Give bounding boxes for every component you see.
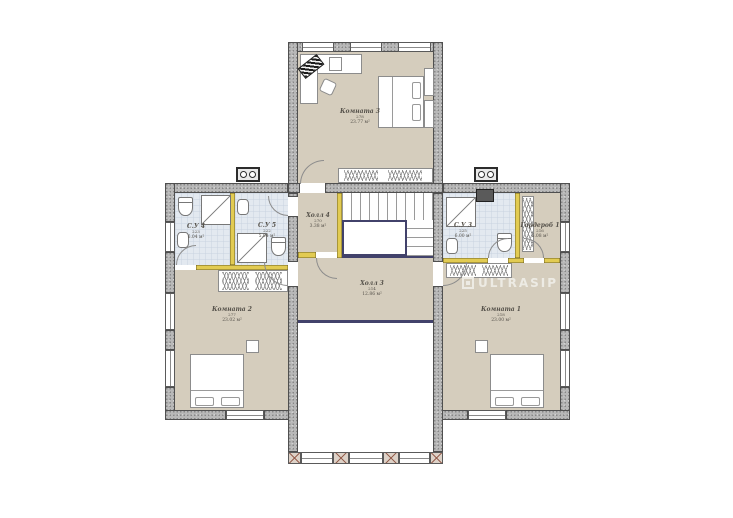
room1-bed-blanket-line bbox=[491, 390, 543, 391]
room3-label: Комната 3 278 23.77 м² bbox=[320, 108, 400, 125]
wall-room3-bottom-b bbox=[325, 183, 443, 193]
watermark-text: ULTRASIP bbox=[478, 276, 558, 290]
floor-plan: Комната 3 278 23.77 м² Холл 4 270 3.38 м… bbox=[0, 0, 733, 518]
window-room1-bottom bbox=[468, 410, 506, 420]
wall-right-outer-1 bbox=[560, 183, 570, 222]
stairwell-void bbox=[342, 220, 407, 256]
su4-label: С.У 4 223 6.04 м² bbox=[178, 223, 214, 240]
void-opening bbox=[298, 323, 433, 452]
window-facade-2 bbox=[349, 452, 383, 464]
wardrobe1-label: Гардероб 1 216 5.08 м² bbox=[518, 222, 562, 239]
facade-pier-1 bbox=[288, 452, 301, 464]
wardrobe1-area: 5.08 м² bbox=[518, 234, 562, 239]
room2-nightstand bbox=[246, 340, 259, 353]
void-railing bbox=[298, 320, 433, 323]
wall-core-right-top bbox=[433, 193, 443, 262]
wall-core-left-mid bbox=[288, 216, 298, 262]
room3-area: 23.77 м² bbox=[320, 120, 400, 125]
room2-pillow-2 bbox=[221, 397, 240, 406]
su5-sink bbox=[237, 199, 249, 215]
wall-left-bottom-a bbox=[165, 410, 226, 420]
room2-pillow-1 bbox=[195, 397, 214, 406]
room1-area: 23.00 м² bbox=[456, 318, 546, 323]
room1-pillow-2 bbox=[521, 397, 540, 406]
window-right-3 bbox=[560, 350, 570, 387]
wall-left-outer-2 bbox=[165, 252, 175, 293]
window-room2-bottom bbox=[226, 410, 264, 420]
hall3-label: Холл 3 214 12.86 м² bbox=[340, 280, 404, 297]
watermark: ULTRASIP bbox=[462, 276, 558, 290]
window-top-3 bbox=[398, 42, 431, 52]
wall-right-outer-2 bbox=[560, 252, 570, 293]
wall-core-right-low bbox=[433, 286, 443, 452]
su5-area: 5.04 м² bbox=[248, 234, 286, 239]
wall-core-left-top bbox=[288, 193, 298, 197]
room1-label: Комната 1 218 23.00 м² bbox=[456, 306, 546, 323]
stair-treads-right-run bbox=[407, 220, 433, 256]
hall4-area: 3.38 м² bbox=[300, 224, 336, 229]
window-top-1 bbox=[302, 42, 334, 52]
vent-shaft-icon-left bbox=[236, 167, 260, 182]
room3-pillow-2 bbox=[412, 104, 421, 121]
room3-wardrobe-hatch-1 bbox=[344, 170, 378, 181]
vent-shaft-icon-right bbox=[474, 167, 498, 182]
partition-right-bottom-c bbox=[544, 258, 560, 263]
window-facade-3 bbox=[399, 452, 430, 464]
window-facade-1 bbox=[301, 452, 333, 464]
room1-pillow-1 bbox=[495, 397, 514, 406]
wall-right-bottom-b bbox=[506, 410, 570, 420]
wall-core-left-low bbox=[288, 286, 298, 452]
room2-label: Комната 2 277 23.02 м² bbox=[192, 306, 272, 323]
wall-room3-bottom-a bbox=[288, 183, 300, 193]
facade-pier-3 bbox=[383, 452, 399, 464]
hall3-area: 12.86 м² bbox=[340, 292, 404, 297]
wall-right-outer-3 bbox=[560, 330, 570, 350]
su3-label: С.У 3 225 6.00 м² bbox=[444, 222, 482, 239]
wall-topwing-right bbox=[433, 42, 443, 193]
su3-washing-machine bbox=[476, 189, 494, 202]
facade-pier-4 bbox=[430, 452, 443, 464]
wall-topwing-left bbox=[288, 42, 298, 193]
window-right-2 bbox=[560, 293, 570, 330]
su5-label: С.У 5 222 5.04 м² bbox=[248, 222, 286, 239]
room3-pillow-1 bbox=[412, 82, 421, 99]
stair-treads-upper-run bbox=[342, 193, 433, 220]
window-left-2 bbox=[165, 293, 175, 330]
room2-bed-blanket-line bbox=[191, 390, 243, 391]
wall-band-top-right bbox=[443, 183, 570, 193]
room3-wardrobe-hatch-2 bbox=[388, 170, 422, 181]
wall-left-outer-1 bbox=[165, 183, 175, 222]
window-left-1 bbox=[165, 222, 175, 252]
wall-left-outer-3 bbox=[165, 330, 175, 350]
room2-area: 23.02 м² bbox=[192, 318, 272, 323]
stair-railing bbox=[342, 256, 433, 258]
room1-closet-hatch-2 bbox=[482, 265, 508, 276]
room3-nightstand-1 bbox=[424, 68, 434, 96]
window-top-2 bbox=[350, 42, 382, 52]
window-left-3 bbox=[165, 350, 175, 387]
ultrasip-logo-icon bbox=[462, 277, 474, 289]
partition-hall4-bottom bbox=[298, 252, 316, 258]
su5-toilet bbox=[271, 237, 286, 256]
room1-nightstand bbox=[475, 340, 488, 353]
room3-monitor bbox=[329, 57, 342, 71]
hall4-label: Холл 4 270 3.38 м² bbox=[300, 212, 336, 229]
su3-sink bbox=[446, 238, 458, 254]
wall-band-top-left bbox=[165, 183, 288, 193]
room2-closet-hatch-1 bbox=[222, 272, 249, 290]
su4-toilet bbox=[178, 197, 193, 216]
room3-nightstand-2 bbox=[424, 100, 434, 128]
su3-area: 6.00 м² bbox=[444, 234, 482, 239]
facade-pier-2 bbox=[333, 452, 349, 464]
su4-shower bbox=[201, 195, 231, 225]
su4-area: 6.04 м² bbox=[178, 235, 214, 240]
